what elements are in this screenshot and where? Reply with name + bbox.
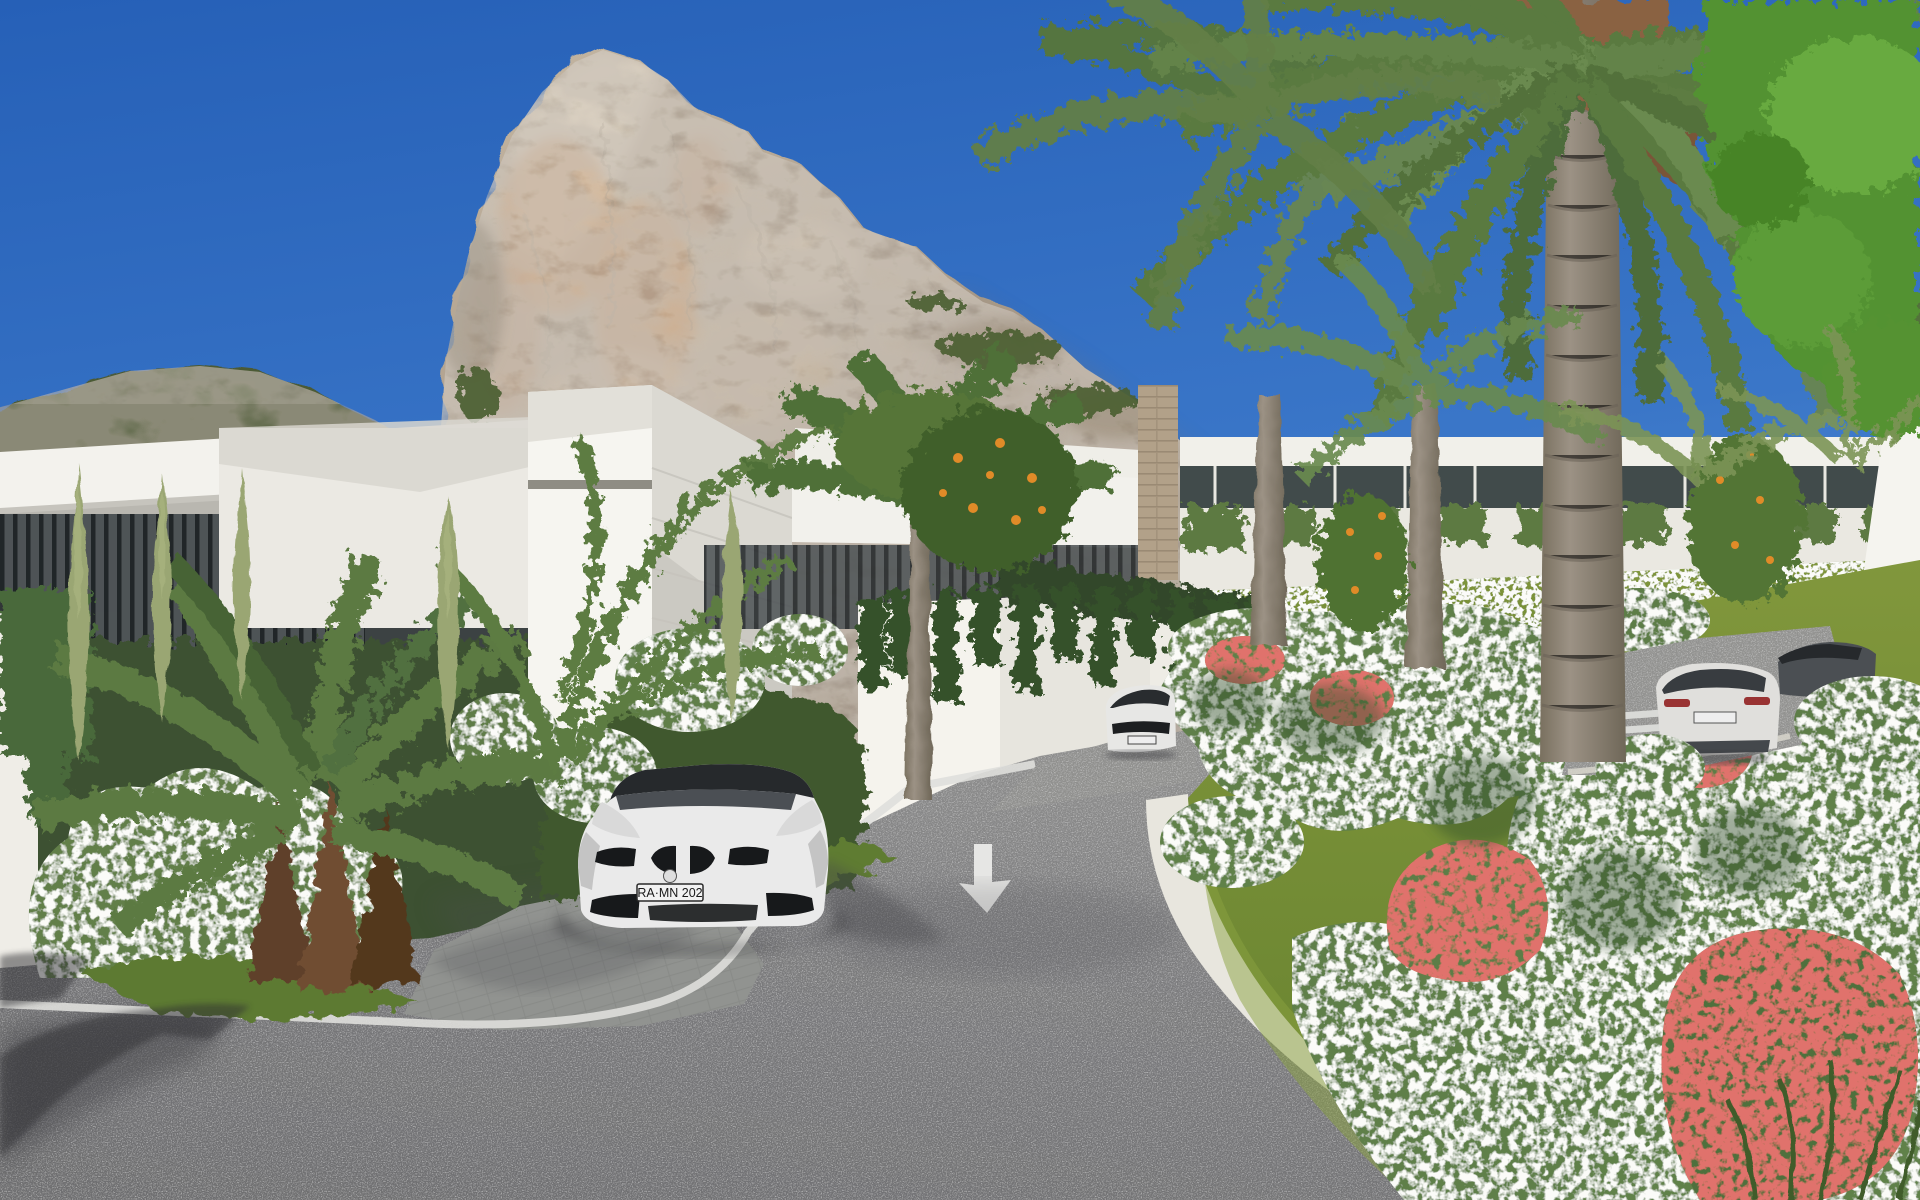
svg-text:RA·MN 202: RA·MN 202 [637,886,702,900]
